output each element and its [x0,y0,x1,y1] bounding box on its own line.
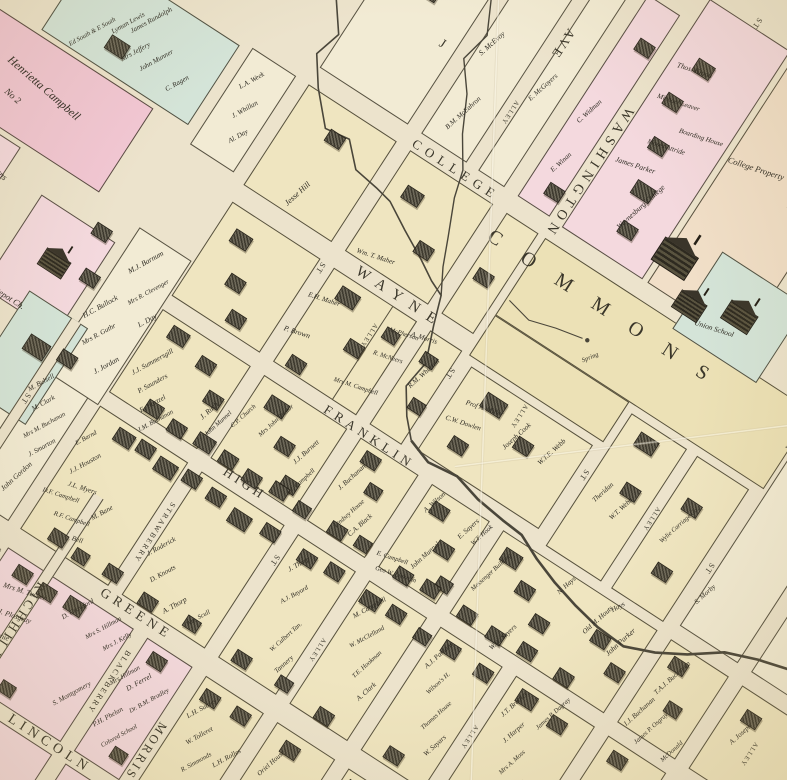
map-world: COLLEGEWAYNEFRANKLINHIGHGREENELINCOLNCOM… [0,0,787,780]
map-viewport: COLLEGEWAYNEFRANKLINHIGHGREENELINCOLNCOM… [0,0,787,780]
